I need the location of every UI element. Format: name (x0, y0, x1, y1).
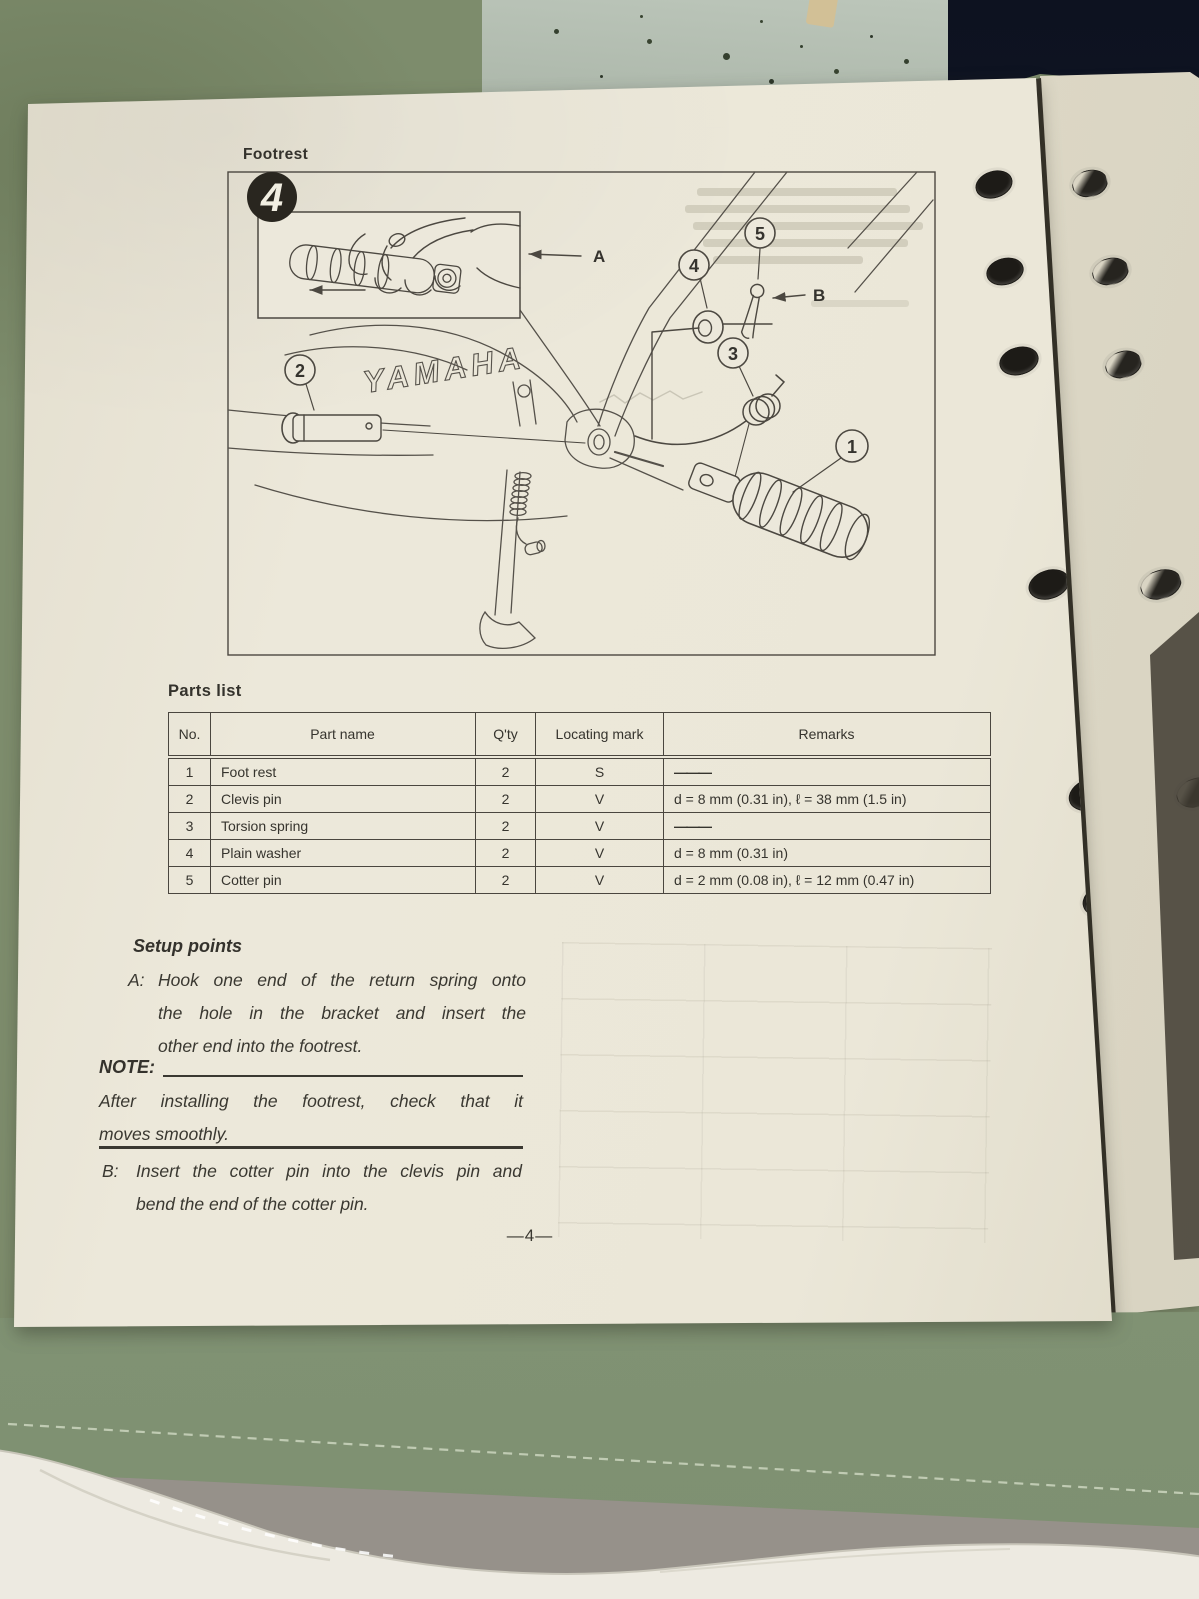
parts-list-title: Parts list (168, 682, 242, 701)
parts-cell-qty: 2 (476, 813, 536, 840)
parts-cell-mark: S (536, 757, 664, 786)
parts-cell-qty: 2 (476, 867, 536, 894)
parts-cell-no: 2 (169, 786, 211, 813)
label-a: A (593, 247, 605, 266)
note-label: NOTE: (99, 1054, 155, 1080)
bleed-through-table (558, 942, 992, 1243)
parts-cell-no: 3 (169, 813, 211, 840)
point-a-marker: A: (128, 964, 158, 1063)
note-end-rule (99, 1146, 523, 1149)
parts-cell-remarks: d = 8 mm (0.31 in) (664, 840, 991, 867)
parts-header-cell: No. (169, 713, 211, 758)
parts-cell-mark: V (536, 867, 664, 894)
manual-page: Footrest (0, 0, 1199, 1599)
binder-hole (1078, 876, 1134, 922)
binder-hole (1100, 983, 1159, 1032)
note-heading: NOTE: (99, 1054, 523, 1080)
note-text: After installing the footrest, check tha… (99, 1085, 523, 1151)
parts-row: 2Clevis pin2Vd = 8 mm (0.31 in), ℓ = 38 … (169, 786, 991, 813)
text-line: Hook one end of the return spring onto (158, 964, 526, 997)
parts-cell-no: 4 (169, 840, 211, 867)
callout-5: 5 (745, 218, 775, 248)
parts-cell-mark: V (536, 840, 664, 867)
note-body: After installing the footrest, check tha… (99, 1085, 523, 1151)
label-b-arrow (773, 295, 805, 298)
parts-cell-no: 1 (169, 757, 211, 786)
binder-hole (1025, 564, 1074, 605)
text-line: the hole in the bracket and insert the (158, 997, 526, 1030)
svg-text:1: 1 (847, 437, 857, 457)
cotter-pin-drawing (741, 283, 765, 340)
parts-cell-mark: V (536, 786, 664, 813)
binder-hole (983, 254, 1027, 290)
parts-cell-remarks: ——— (664, 757, 991, 786)
callout-3: 3 (718, 338, 748, 368)
binder-hole (972, 166, 1016, 203)
binder-hole (996, 342, 1042, 379)
parts-header-cell: Locating mark (536, 713, 664, 758)
parts-cell-remarks: ——— (664, 813, 991, 840)
parts-cell-no: 5 (169, 867, 211, 894)
footrest-peg-drawing (683, 449, 875, 564)
svg-text:4: 4 (689, 256, 699, 276)
svg-text:3: 3 (728, 344, 738, 364)
parts-cell-name: Torsion spring (211, 813, 476, 840)
label-a-arrow (529, 254, 581, 256)
point-a-text: Hook one end of the return spring ontoth… (158, 964, 526, 1063)
footrest-diagram: YAMAHA (215, 160, 955, 670)
setup-point-b: B: Insert the cotter pin into the clevis… (102, 1155, 522, 1221)
setup-point-a: A: Hook one end of the return spring ont… (128, 964, 526, 1063)
svg-text:5: 5 (755, 224, 765, 244)
parts-table: No.Part nameQ'tyLocating markRemarks 1Fo… (168, 712, 991, 894)
parts-header-cell: Q'ty (476, 713, 536, 758)
parts-row: 3Torsion spring2V——— (169, 813, 991, 840)
parts-cell-name: Foot rest (211, 757, 476, 786)
parts-row: 5Cotter pin2Vd = 2 mm (0.08 in), ℓ = 12 … (169, 867, 991, 894)
label-b: B (813, 286, 825, 305)
parts-cell-qty: 2 (476, 757, 536, 786)
text-line: After installing the footrest, check tha… (99, 1085, 523, 1118)
parts-cell-remarks: d = 8 mm (0.31 in), ℓ = 38 mm (1.5 in) (664, 786, 991, 813)
parts-row: 1Foot rest2S——— (169, 757, 991, 786)
parts-table-body: 1Foot rest2S———2Clevis pin2Vd = 8 mm (0.… (169, 757, 991, 894)
manual-page-shadow: Footrest (0, 0, 1199, 1599)
inset-hand-illustration (258, 212, 520, 318)
point-b-marker: B: (102, 1155, 136, 1221)
parts-cell-name: Cotter pin (211, 867, 476, 894)
photo-scene: Footrest (0, 0, 1199, 1599)
setup-points-title: Setup points (133, 936, 242, 957)
parts-cell-qty: 2 (476, 840, 536, 867)
parts-header-cell: Part name (211, 713, 476, 758)
parts-cell-remarks: d = 2 mm (0.08 in), ℓ = 12 mm (0.47 in) (664, 867, 991, 894)
parts-header-row: No.Part nameQ'tyLocating markRemarks (169, 713, 991, 758)
callout-4: 4 (679, 250, 709, 280)
step-badge-number: 4 (260, 176, 283, 220)
note-underline (163, 1054, 523, 1077)
parts-cell-qty: 2 (476, 786, 536, 813)
parts-cell-mark: V (536, 813, 664, 840)
callout-1: 1 (836, 430, 868, 462)
text-line: Insert the cotter pin into the clevis pi… (136, 1155, 522, 1188)
bleed-through-text (685, 188, 923, 307)
parts-cell-name: Clevis pin (211, 786, 476, 813)
point-b-text: Insert the cotter pin into the clevis pi… (136, 1155, 522, 1221)
callout-2: 2 (285, 355, 315, 385)
clevis-pin-drawing (282, 413, 585, 443)
parts-header-cell: Remarks (664, 713, 991, 758)
svg-text:2: 2 (295, 361, 305, 381)
torsion-spring-drawing (635, 375, 784, 477)
parts-table-header: No.Part nameQ'tyLocating markRemarks (169, 713, 991, 758)
parts-row: 4Plain washer2Vd = 8 mm (0.31 in) (169, 840, 991, 867)
bleed-through-scribble (600, 391, 702, 403)
text-line: bend the end of the cotter pin. (136, 1188, 522, 1221)
parts-cell-name: Plain washer (211, 840, 476, 867)
binder-hole (1064, 771, 1119, 817)
